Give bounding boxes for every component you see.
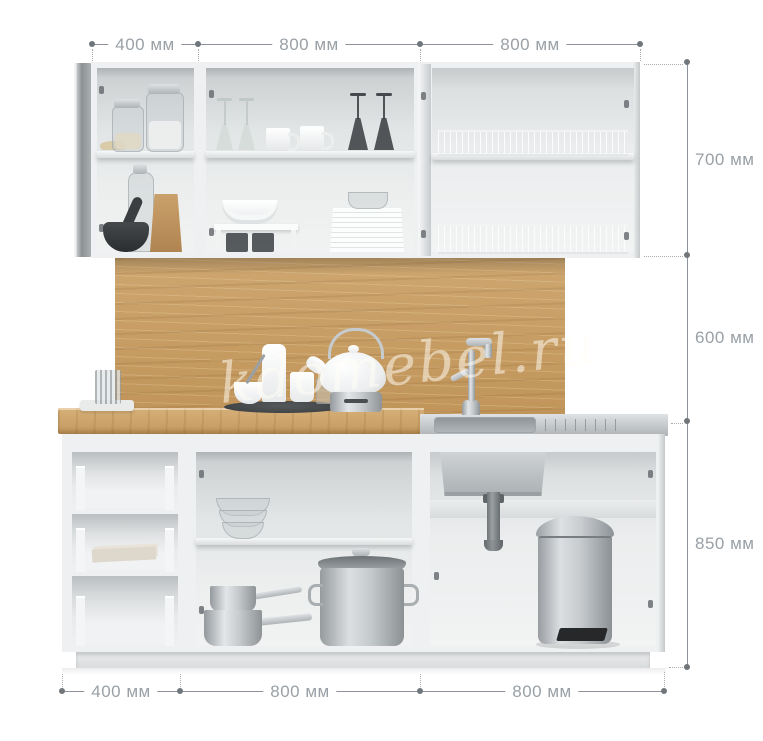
dimension-label: 700 мм [695,150,754,170]
wine-glass-stem [357,96,359,119]
jar-lid-icon [114,99,140,108]
dimension-label: 800 мм [493,35,566,55]
saucepan [204,610,262,646]
dimension-dot [637,41,643,47]
wine-glass-stem [383,96,385,119]
wine-glass-stem [224,101,226,125]
hinge-icon [421,230,426,238]
extension-line [92,49,93,61]
dimension-label: 600 мм [695,328,754,348]
wine-glass-foot [239,98,254,101]
hinge-icon [648,470,653,478]
mid-rail [430,500,656,518]
base-right-side-face [658,434,665,652]
mug-icon [300,126,324,150]
upper-middle-shelf [206,151,414,158]
extension-line [62,674,63,687]
faucet-base [462,400,480,415]
dimension-label: 400 мм [84,682,157,702]
floor-shadow [62,668,666,675]
stock-pot-lid-knob [352,548,370,556]
wine-glass-foot [376,93,392,96]
dimension-dot [59,688,65,694]
hinge-icon [648,600,653,608]
pot-handle-icon [308,584,323,606]
drawer-side [76,596,85,646]
hinge-icon [209,90,214,98]
dimension-label: 800 мм [505,682,578,702]
ribbed-glass [95,370,121,404]
dish-drying-rack [438,130,628,156]
extension-line [664,672,665,687]
shelf-riser [214,224,298,230]
dimension-label: 850 мм [695,534,754,554]
hinge-icon [99,86,104,94]
hinge-icon [434,572,439,580]
siphon-cap [484,540,503,551]
hinge-icon [624,100,629,108]
bottle-cap-icon [133,164,147,174]
riser-leg [216,230,221,252]
drawer-side [76,528,85,572]
extension-line [644,256,683,257]
upper-left-shelf [97,151,194,158]
dimension-dot [684,418,690,424]
glass-bowl [348,192,388,209]
extension-line [669,667,683,668]
cabinet-shadow-on-wall [115,258,565,274]
siphon-pipe [487,492,500,544]
plinth [76,652,650,668]
wine-glass-foot [350,93,366,96]
dark-glass-icon [252,233,274,252]
drawer-side [165,528,174,572]
dimension-label: 400 мм [108,35,181,55]
upper-left-open-door [74,63,91,257]
drawer-side [76,466,85,510]
dimension-dot [684,664,690,670]
drainboard-grooves [545,419,623,431]
drawer-side [165,596,174,646]
jar-lid-icon [148,84,180,94]
extension-line [640,49,641,61]
extension-line [644,64,683,65]
dimension-dot [417,41,423,47]
dimension-dot [177,688,183,694]
glass-jar-large [146,92,184,152]
sink-bowl-underside [438,452,548,496]
wine-glass-stem [246,101,248,125]
pot-handle-icon [404,584,419,606]
dimension-dot [417,688,423,694]
stock-pot [320,568,404,646]
dimension-dot [684,59,690,65]
extension-line [198,49,199,61]
dimension-dot [684,252,690,258]
extension-line [420,49,421,61]
dimension-label: 800 мм [272,35,345,55]
upper-right-side-face [633,62,640,258]
extension-line [671,423,683,424]
bin-pedal [556,628,608,641]
saucepan [210,586,256,612]
mug-icon [266,128,290,150]
riser-leg [291,230,296,252]
sink-basin [434,417,536,433]
dimension-label: 800 мм [263,682,336,702]
hinge-icon [624,232,629,240]
dark-glass-icon [226,233,248,252]
paper-bag [150,194,182,252]
kitchen-dimension-diagram: kdomebel.ru 400 мм 800 мм 800 мм 700 мм … [0,0,763,741]
dimension-dot [89,41,95,47]
drawer-box [76,470,174,508]
dish-drying-rack [438,224,628,254]
base-middle-shelf [196,538,412,545]
dimension-dot [195,41,201,47]
jar-contents [115,133,141,149]
plate-stack [330,208,404,252]
hinge-icon [421,92,426,100]
wine-glass-foot [217,98,232,101]
glass-jar-small [112,106,144,152]
dimension-dot [661,688,667,694]
extension-line [420,674,421,687]
drawer-side [165,466,174,510]
jar-contents [149,121,181,149]
drawer-box [76,600,174,644]
dimension-line [687,62,688,667]
extension-line [180,674,181,687]
hinge-icon [199,470,204,478]
